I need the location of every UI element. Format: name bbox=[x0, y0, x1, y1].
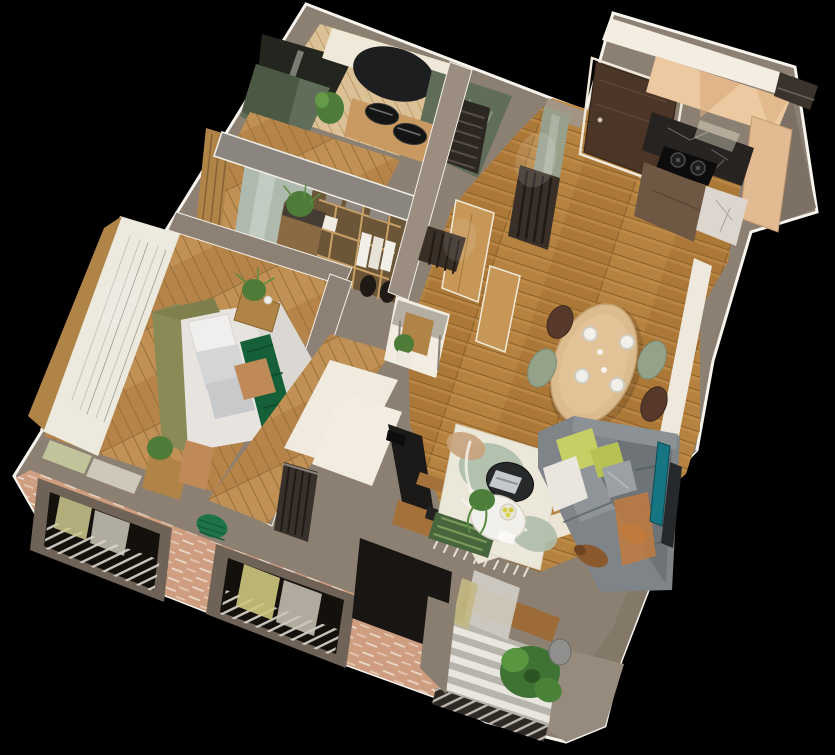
fruit-2 bbox=[509, 508, 514, 513]
shape-root bbox=[14, 4, 818, 742]
dining-plate-3 bbox=[575, 369, 589, 383]
fruit-1 bbox=[503, 508, 508, 513]
dining-plate-2 bbox=[620, 335, 634, 349]
nightstand-north-lamp bbox=[264, 296, 272, 304]
dining-cup-2 bbox=[601, 367, 607, 373]
balcony-plant-core bbox=[524, 669, 540, 683]
fruit-3 bbox=[506, 513, 511, 518]
entry-door-handle bbox=[598, 118, 603, 123]
balcony-vase bbox=[549, 639, 571, 665]
fruit-bowl bbox=[500, 504, 516, 520]
kitchen-burner-center-1 bbox=[676, 158, 680, 162]
apartment-3d-floor-plan bbox=[0, 0, 835, 755]
desk-plant bbox=[394, 334, 414, 354]
bathroom-plant-light bbox=[315, 92, 329, 108]
kitchen-burner-center-2 bbox=[696, 166, 700, 170]
dining-plate-4 bbox=[610, 378, 624, 392]
floor-plan-render bbox=[0, 0, 835, 755]
dining-cup-1 bbox=[597, 349, 603, 355]
dining-plate-1 bbox=[583, 327, 597, 341]
nightstand-south-plant bbox=[147, 436, 173, 460]
